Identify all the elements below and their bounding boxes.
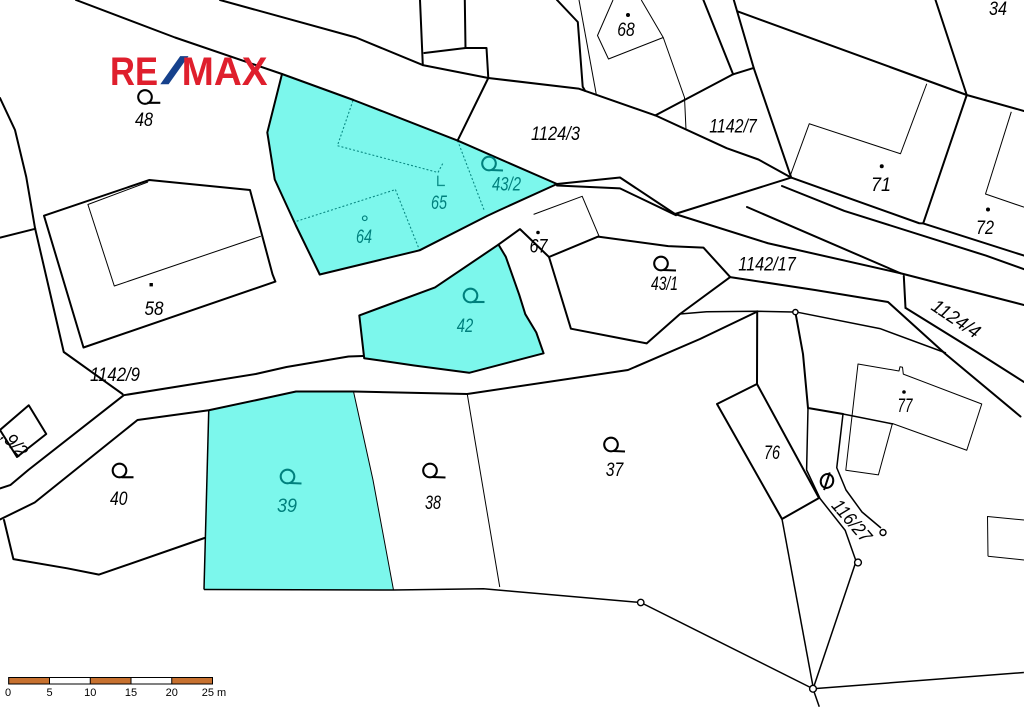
svg-text:1124/3: 1124/3 xyxy=(531,124,580,145)
svg-text:72: 72 xyxy=(976,218,994,239)
svg-text:10: 10 xyxy=(84,687,96,699)
svg-text:1142/7: 1142/7 xyxy=(709,117,758,138)
svg-text:38: 38 xyxy=(425,493,441,514)
svg-text:43/2: 43/2 xyxy=(492,175,521,196)
svg-text:40: 40 xyxy=(110,489,128,510)
svg-text:77: 77 xyxy=(898,396,914,417)
svg-text:MAX: MAX xyxy=(182,50,268,94)
svg-text:64: 64 xyxy=(356,227,372,248)
svg-text:34: 34 xyxy=(989,0,1007,20)
svg-text:1142/9: 1142/9 xyxy=(90,365,140,386)
svg-text:76: 76 xyxy=(764,443,780,464)
svg-text:71: 71 xyxy=(871,175,891,196)
svg-text:43/1: 43/1 xyxy=(651,274,678,295)
svg-text:58: 58 xyxy=(145,299,164,320)
svg-text:0: 0 xyxy=(5,687,11,699)
svg-text:42: 42 xyxy=(457,316,474,337)
svg-text:37: 37 xyxy=(606,460,625,481)
svg-text:15: 15 xyxy=(125,687,137,699)
svg-text:1142/17: 1142/17 xyxy=(738,255,797,276)
svg-text:25 m: 25 m xyxy=(202,687,226,699)
svg-text:39: 39 xyxy=(277,496,297,517)
svg-text:5: 5 xyxy=(46,687,52,699)
svg-text:68: 68 xyxy=(617,20,635,41)
svg-text:65: 65 xyxy=(431,193,447,214)
svg-text:67: 67 xyxy=(530,237,549,258)
svg-text:RE: RE xyxy=(110,50,158,94)
svg-text:48: 48 xyxy=(135,110,153,131)
svg-text:20: 20 xyxy=(166,687,178,699)
